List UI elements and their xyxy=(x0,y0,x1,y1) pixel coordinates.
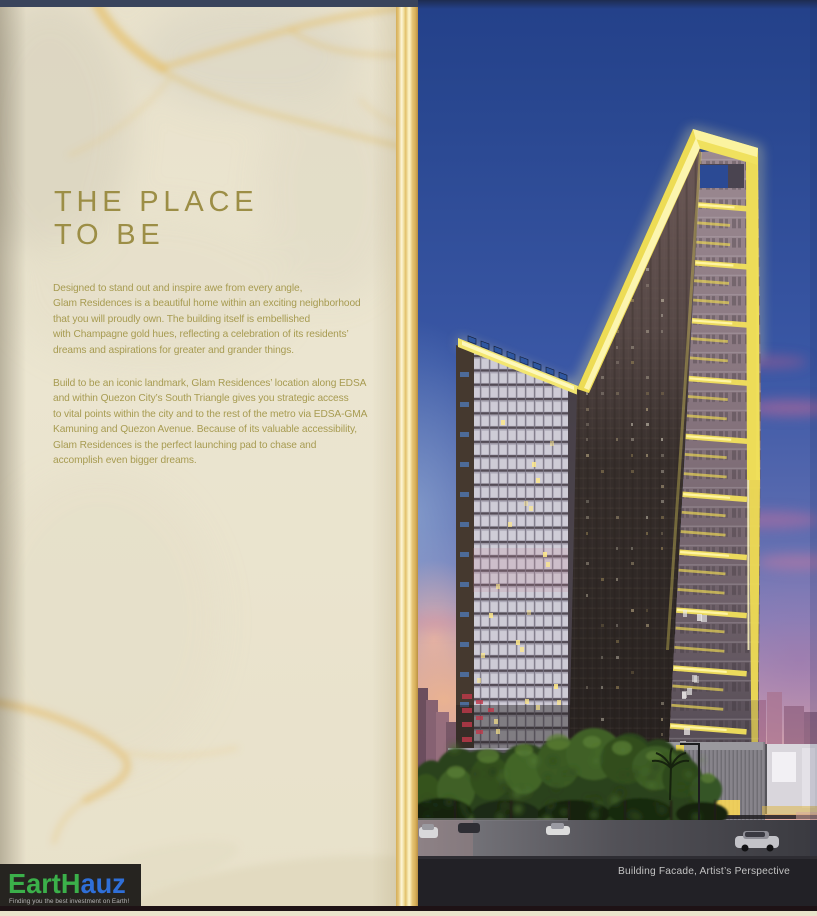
svg-text:Building Facade, Artist’s Pers: Building Facade, Artist’s Perspective xyxy=(618,866,790,877)
